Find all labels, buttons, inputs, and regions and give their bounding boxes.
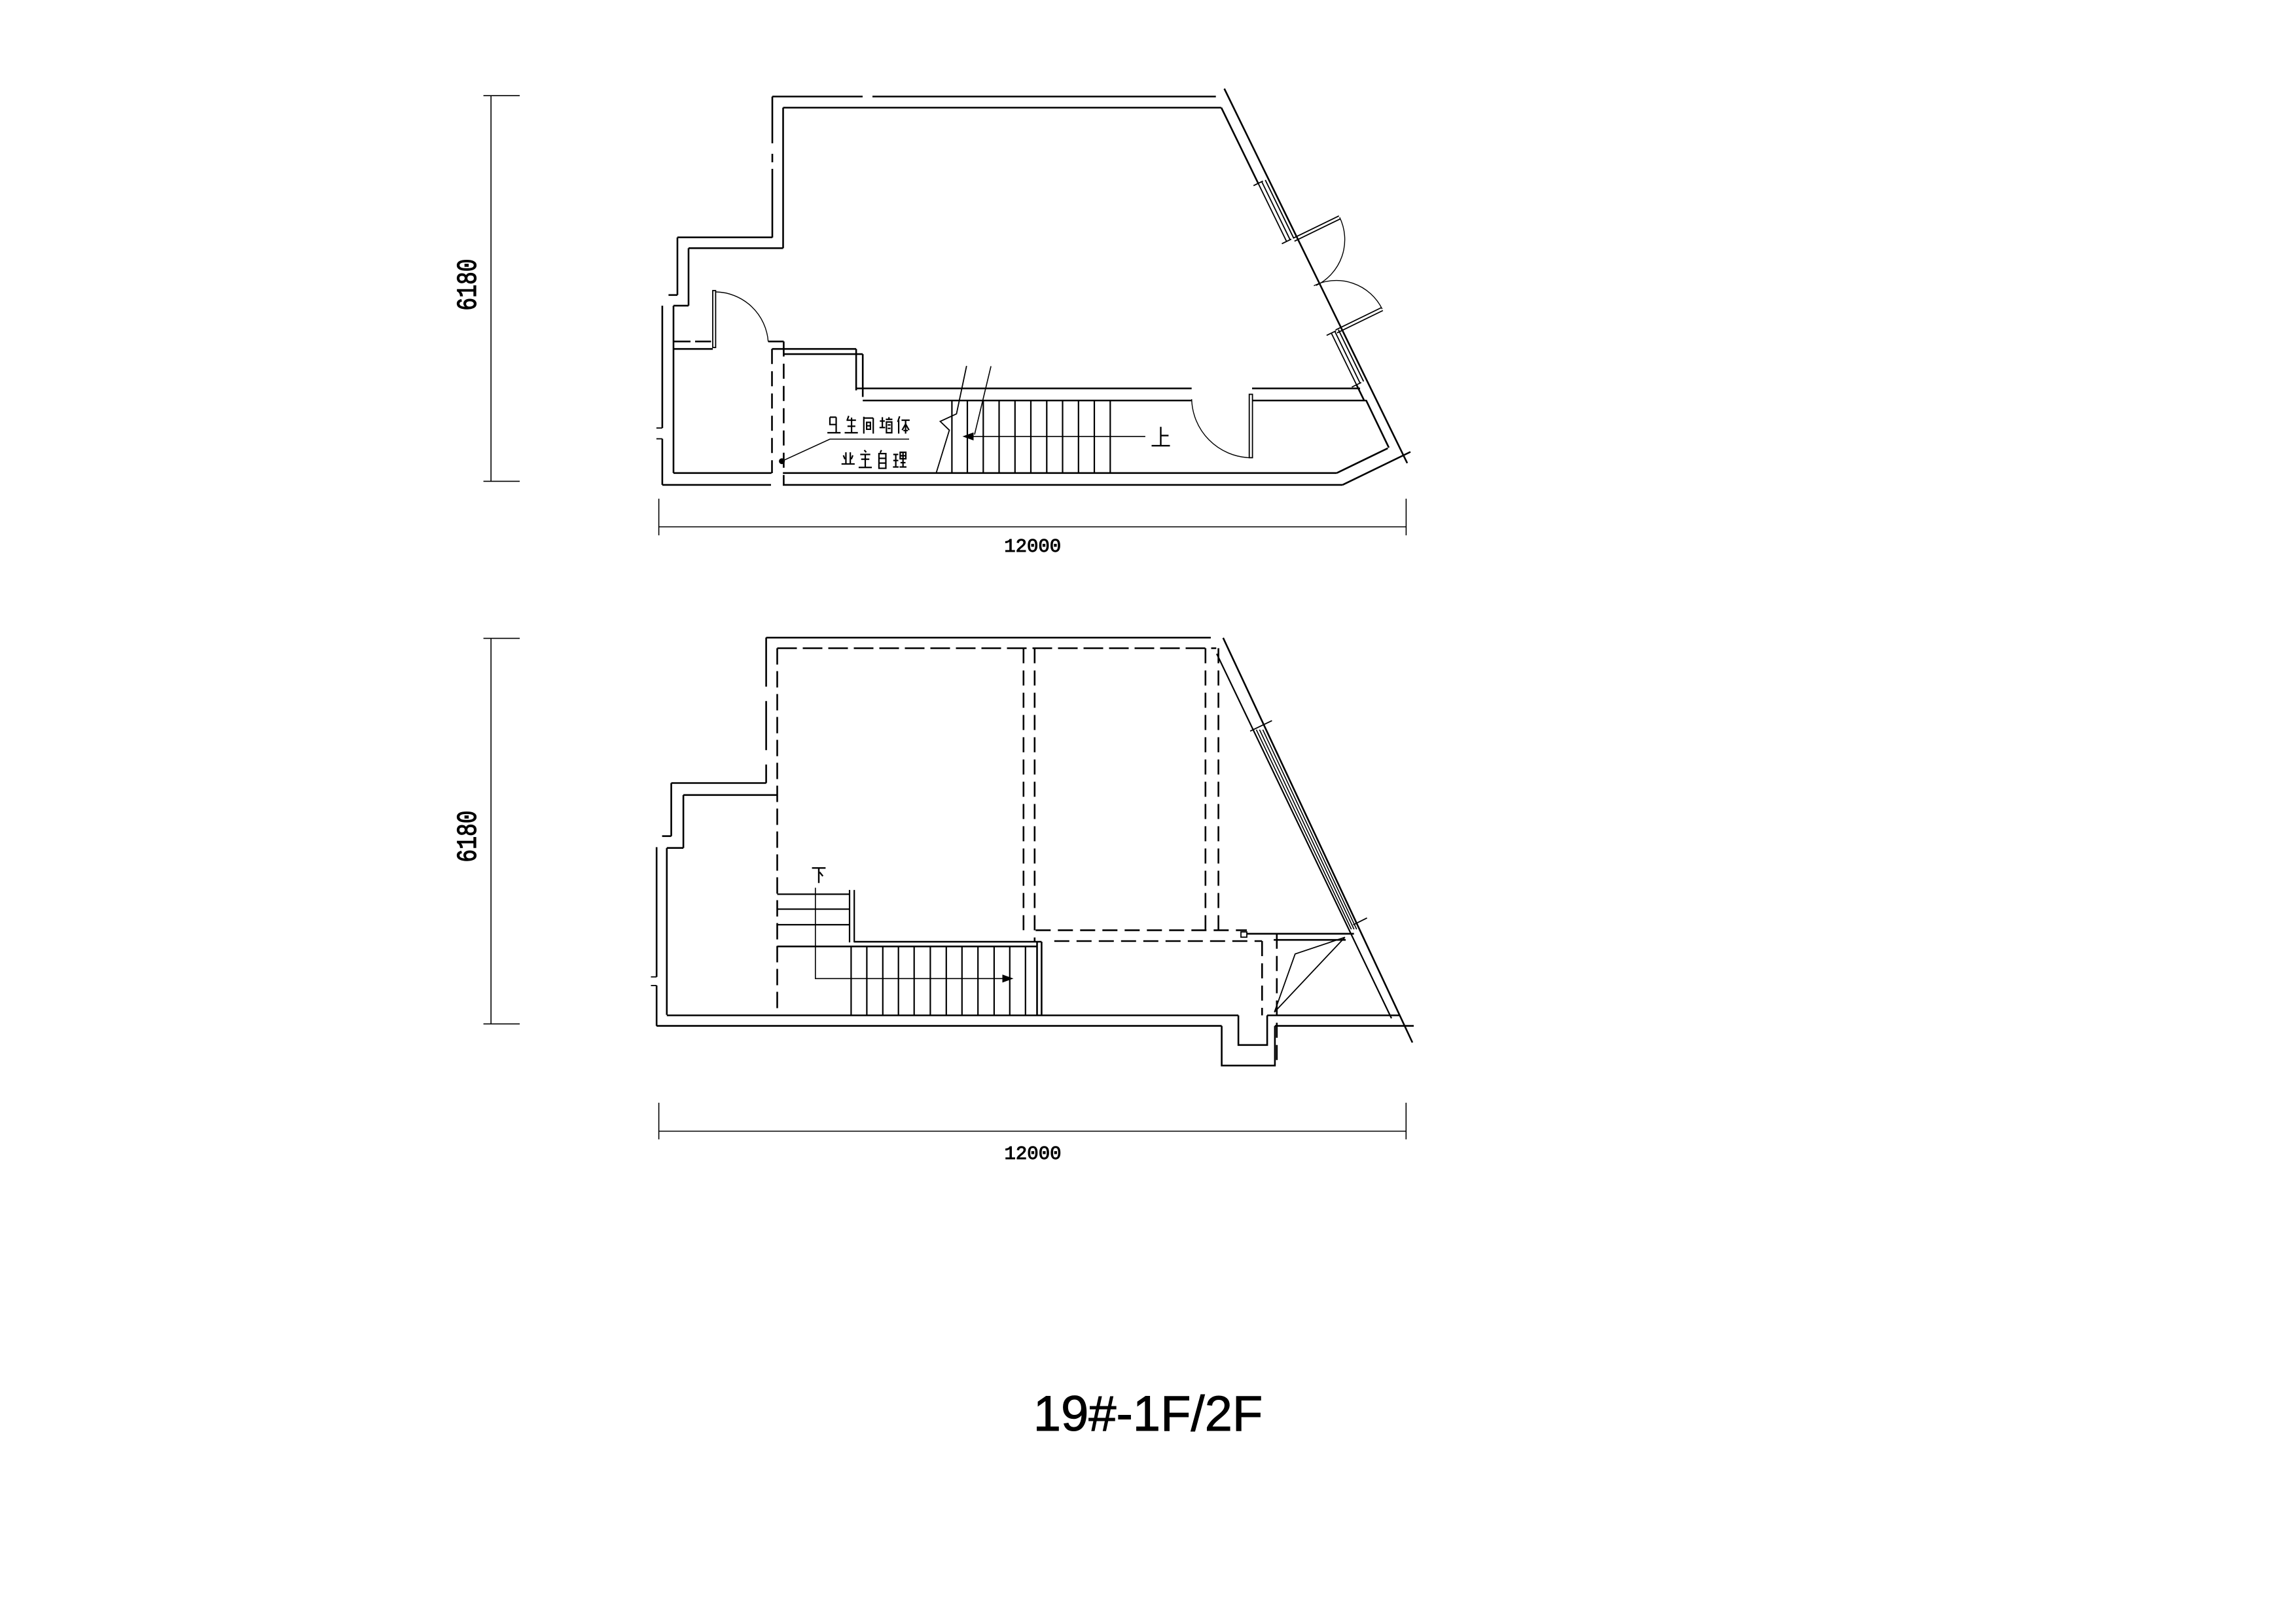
- svg-text:6180: 6180: [453, 810, 484, 862]
- svg-text:12000: 12000: [1004, 1143, 1061, 1165]
- svg-text:6180: 6180: [453, 259, 484, 310]
- svg-text:19#-1F/2F: 19#-1F/2F: [1033, 1386, 1263, 1442]
- svg-text:12000: 12000: [1004, 536, 1061, 558]
